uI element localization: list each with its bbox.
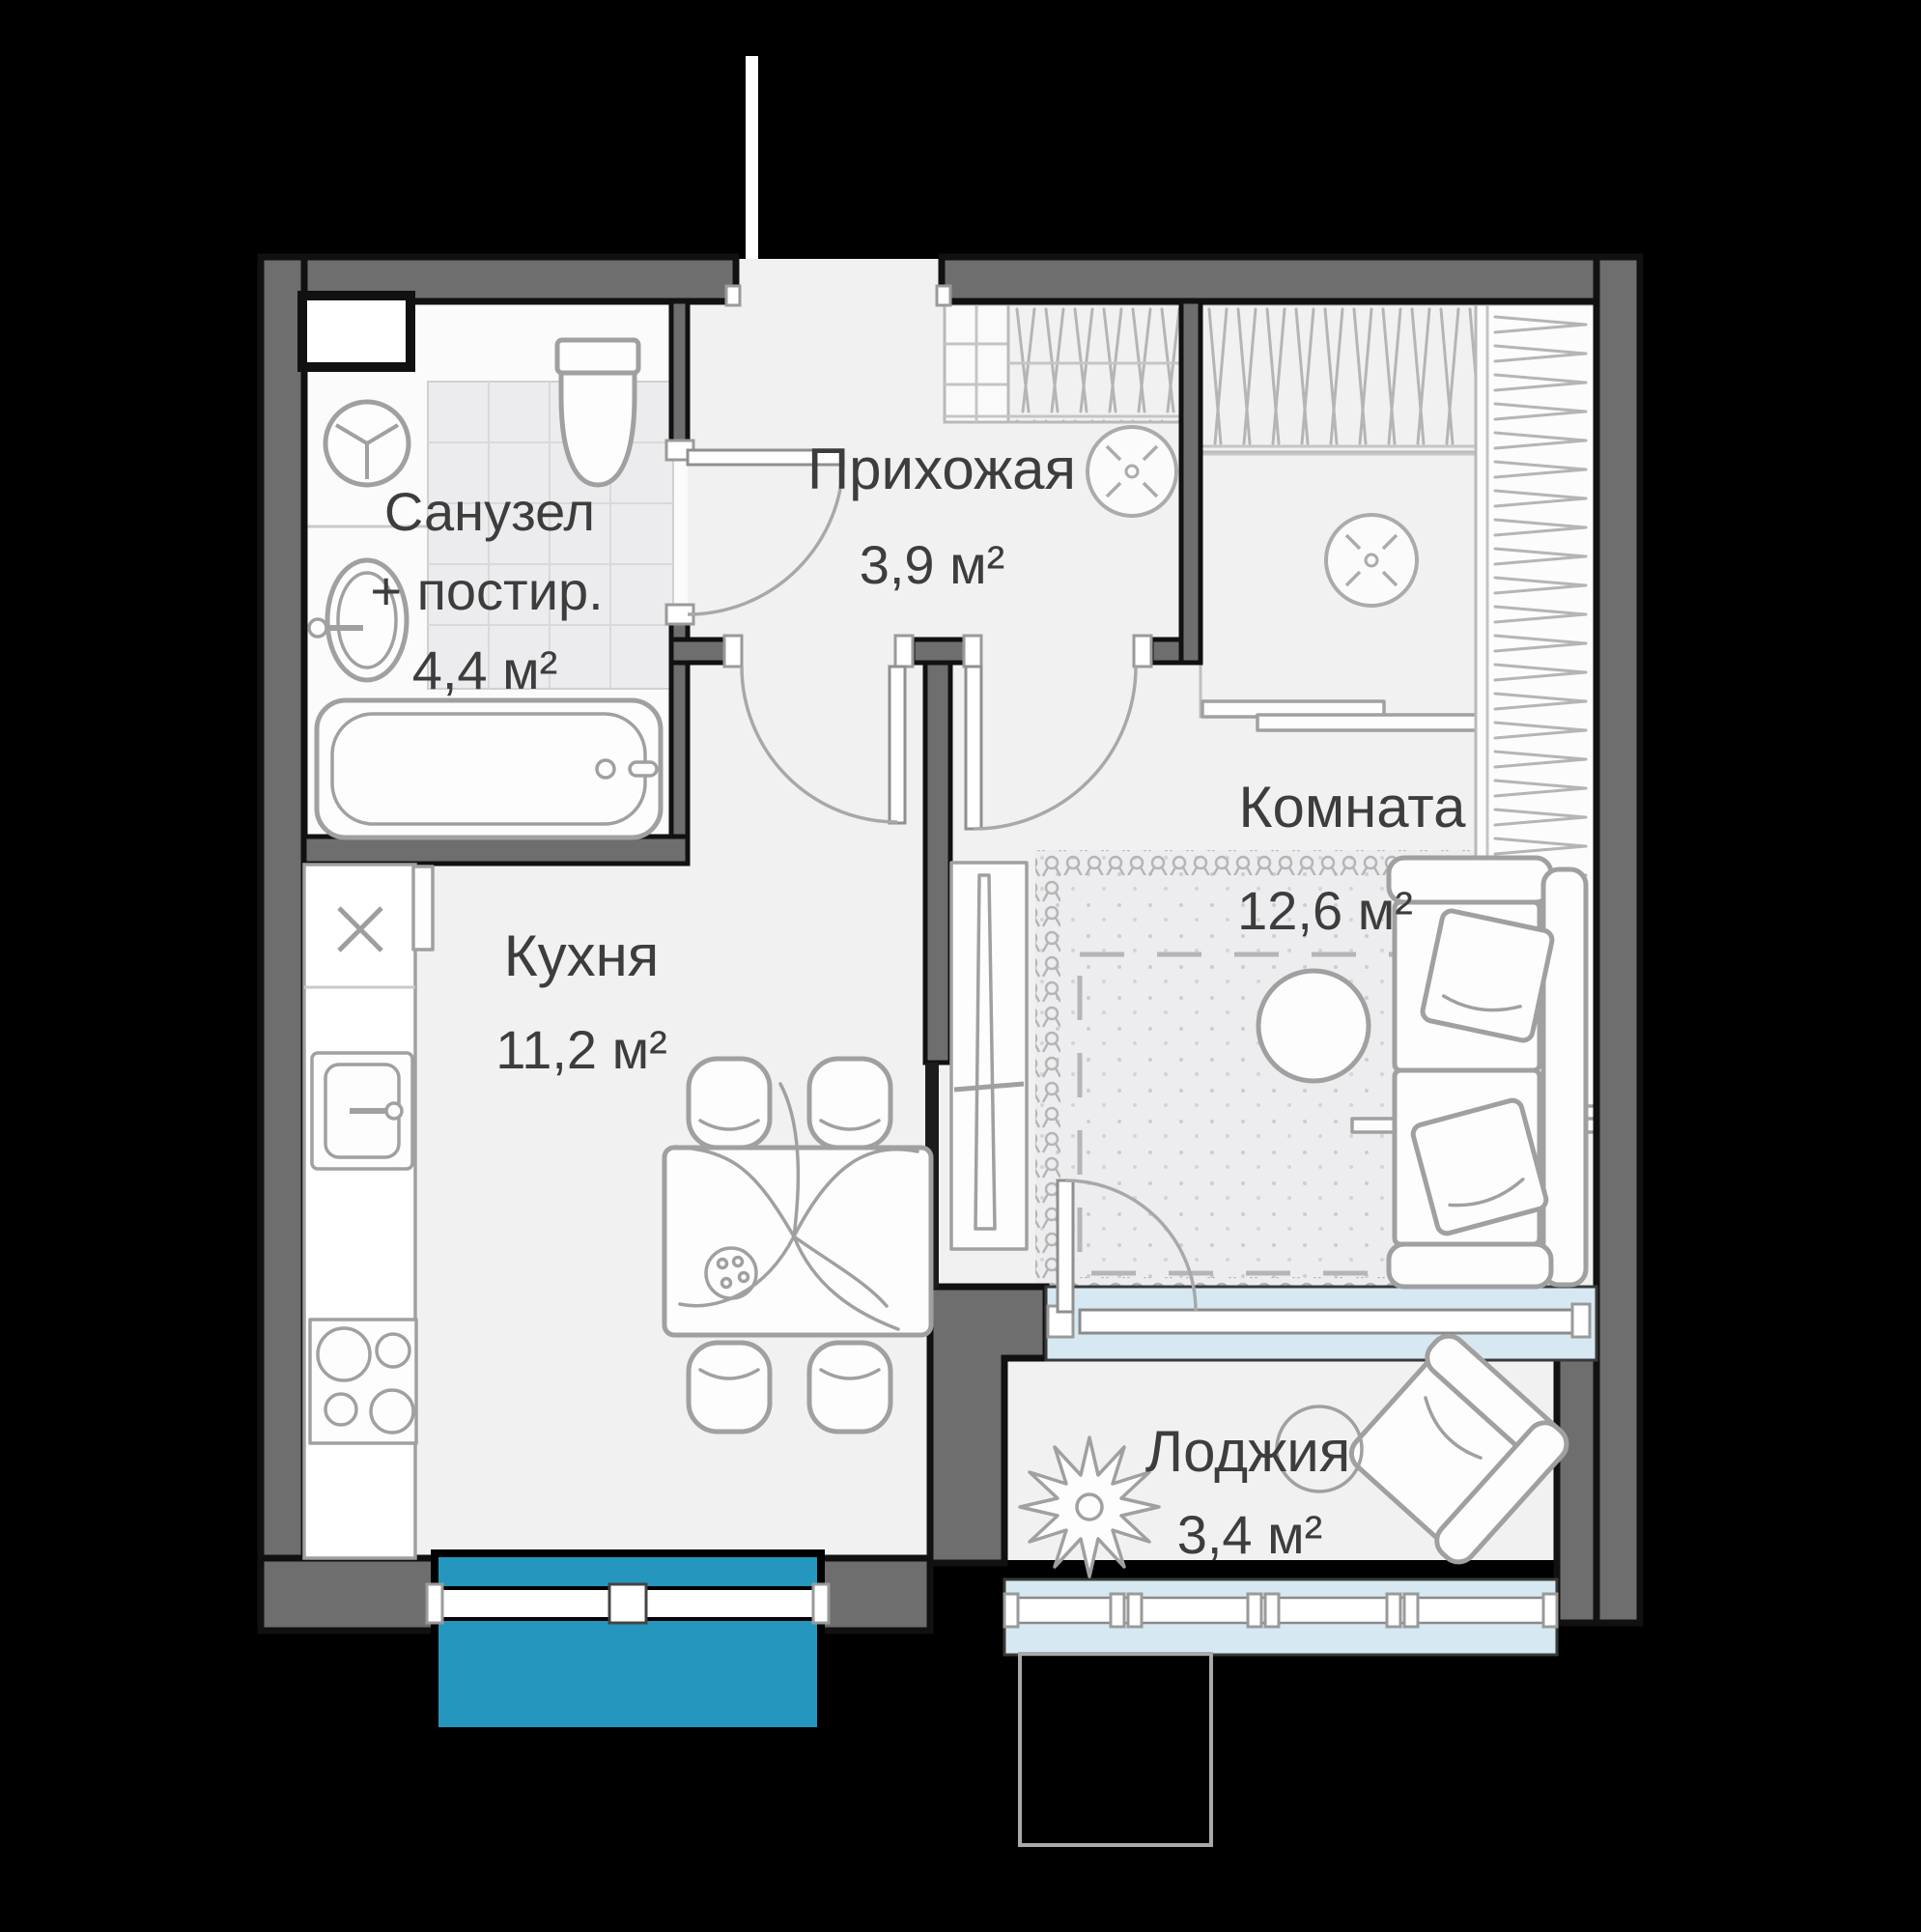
wardrobe-hallway [945, 304, 1184, 422]
bathroom-area-label: 4,4 м² [412, 639, 558, 700]
bathroom-label: Санузел [384, 481, 595, 542]
kitchen-counter [304, 865, 433, 1558]
bathtub-icon [317, 700, 661, 838]
dining-chair [809, 1343, 890, 1432]
bathroom-label-suffix: + постир. [370, 560, 603, 621]
pouf-icon [1258, 971, 1369, 1081]
kitchen-window [427, 1553, 829, 1731]
shaft [302, 296, 410, 367]
hallway-label: Прихожая [807, 437, 1076, 501]
dining-chair [689, 1059, 770, 1148]
sofa-pillow-icon [1421, 909, 1554, 1042]
entry-mark-line [746, 56, 758, 261]
dining-chair [689, 1343, 770, 1432]
hallway-area-label: 3,9 м² [860, 534, 1005, 595]
loggia-area-label: 3,4 м² [1177, 1504, 1323, 1565]
dining-chair [809, 1059, 890, 1148]
washing-machine-icon [325, 402, 409, 485]
sofa-icon [1389, 858, 1586, 1287]
loggia-label: Лоджия [1145, 1419, 1351, 1484]
ceiling-light-icon [1088, 427, 1176, 516]
loggia-glazing [1004, 1579, 1557, 1655]
wardrobe-hatch-icon [1201, 304, 1483, 452]
kitchen-label: Кухня [504, 923, 660, 988]
kitchen-sink-icon [312, 1053, 412, 1169]
living-room-area-label: 12,6 м² [1237, 880, 1413, 941]
toilet-icon [557, 340, 638, 485]
living-room-label: Комната [1239, 775, 1467, 839]
cooktop-icon [310, 1320, 416, 1443]
floor-plan: Санузел + постир. 4,4 м² Прихожая 3,9 м²… [0, 0, 1921, 1932]
room-loggia-glazing [1046, 1287, 1596, 1360]
kitchen-area-label: 11,2 м² [495, 1019, 667, 1080]
tv-panel-icon [951, 863, 1027, 1249]
ceiling-light-icon [1326, 515, 1417, 606]
